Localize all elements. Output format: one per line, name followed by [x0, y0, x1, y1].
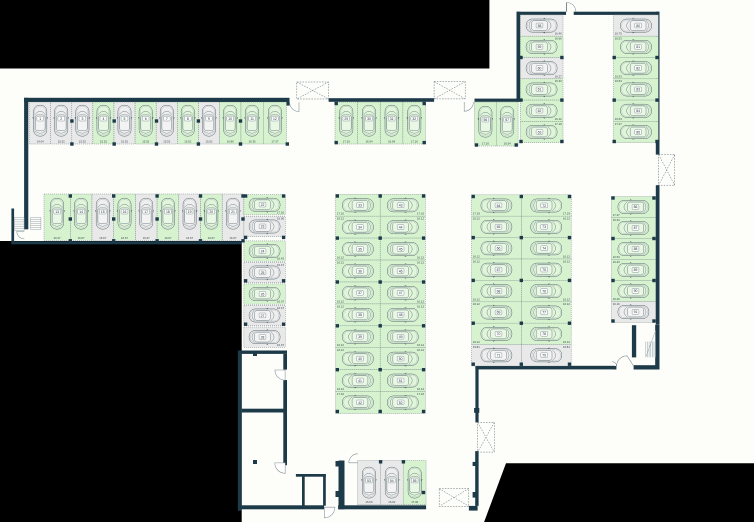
- svg-text:70: 70: [497, 332, 501, 336]
- svg-text:91: 91: [634, 310, 638, 314]
- svg-text:9: 9: [208, 117, 210, 121]
- svg-text:22: 22: [261, 203, 265, 207]
- svg-text:16.12: 16.12: [555, 117, 562, 121]
- svg-text:17.16: 17.16: [277, 210, 284, 214]
- svg-text:16.67: 16.67: [99, 236, 106, 240]
- svg-text:43: 43: [399, 204, 403, 208]
- svg-text:15.52: 15.52: [142, 140, 149, 144]
- svg-text:26: 26: [261, 292, 265, 296]
- svg-text:16.33: 16.33: [613, 260, 620, 264]
- svg-text:32: 32: [412, 117, 416, 121]
- svg-text:16.67: 16.67: [143, 236, 150, 240]
- svg-text:16.67: 16.67: [164, 236, 171, 240]
- svg-text:40: 40: [358, 357, 362, 361]
- svg-text:62: 62: [538, 109, 542, 113]
- svg-text:14.04: 14.04: [37, 140, 44, 144]
- svg-text:27: 27: [261, 314, 265, 318]
- svg-text:16.12: 16.12: [563, 217, 570, 221]
- svg-text:88: 88: [634, 247, 638, 251]
- svg-text:37: 37: [358, 291, 362, 295]
- svg-text:16.12: 16.12: [417, 348, 424, 352]
- svg-text:10: 10: [228, 117, 232, 121]
- svg-text:16.12: 16.12: [337, 387, 344, 391]
- svg-text:6: 6: [145, 117, 147, 121]
- svg-text:16.33: 16.33: [555, 79, 562, 83]
- svg-text:17.19: 17.19: [555, 122, 562, 126]
- svg-text:16.00: 16.00: [365, 500, 372, 504]
- svg-text:66: 66: [497, 247, 501, 251]
- svg-text:16.07: 16.07: [277, 343, 284, 347]
- svg-text:82: 82: [636, 66, 640, 70]
- svg-text:16.12: 16.12: [337, 343, 344, 347]
- svg-text:3: 3: [81, 117, 83, 121]
- svg-text:71: 71: [497, 354, 501, 358]
- svg-text:17.27: 17.27: [615, 122, 622, 126]
- svg-text:16.12: 16.12: [337, 304, 344, 308]
- svg-text:16.86: 16.86: [227, 140, 234, 144]
- svg-text:68: 68: [497, 289, 501, 293]
- svg-text:35: 35: [358, 247, 362, 251]
- svg-text:16.12: 16.12: [337, 348, 344, 352]
- svg-text:16.12: 16.12: [417, 261, 424, 265]
- svg-text:16.12: 16.12: [417, 256, 424, 260]
- svg-text:17.19: 17.19: [563, 212, 570, 216]
- svg-text:55: 55: [413, 479, 417, 483]
- svg-text:17.16: 17.16: [417, 392, 424, 396]
- svg-text:30: 30: [367, 117, 371, 121]
- svg-text:16.67: 16.67: [186, 236, 193, 240]
- svg-text:59: 59: [538, 45, 542, 49]
- svg-text:15.52: 15.52: [184, 140, 191, 144]
- svg-text:16.67: 16.67: [208, 236, 215, 240]
- svg-text:24: 24: [261, 249, 265, 253]
- svg-text:17.16: 17.16: [417, 212, 424, 216]
- svg-text:16.54: 16.54: [504, 142, 511, 146]
- svg-text:1: 1: [39, 117, 41, 121]
- svg-text:44: 44: [399, 225, 403, 229]
- svg-text:75: 75: [542, 268, 546, 272]
- svg-text:76: 76: [542, 289, 546, 293]
- svg-text:50: 50: [399, 357, 403, 361]
- svg-text:16.12: 16.12: [563, 255, 570, 259]
- svg-text:16.67: 16.67: [78, 236, 85, 240]
- svg-text:17.00: 17.00: [411, 500, 418, 504]
- svg-text:16.46: 16.46: [555, 32, 562, 36]
- svg-text:17.16: 17.16: [343, 140, 350, 144]
- svg-text:16.43: 16.43: [277, 257, 284, 261]
- svg-text:16.12: 16.12: [473, 302, 480, 306]
- svg-text:16.27: 16.27: [555, 74, 562, 78]
- svg-text:11: 11: [250, 117, 254, 121]
- svg-text:83: 83: [636, 88, 640, 92]
- svg-text:29: 29: [344, 117, 348, 121]
- svg-text:4: 4: [103, 117, 105, 121]
- svg-text:39: 39: [358, 335, 362, 339]
- svg-text:23: 23: [261, 225, 265, 229]
- svg-text:13: 13: [55, 210, 59, 214]
- svg-text:16.12: 16.12: [473, 297, 480, 301]
- svg-text:61: 61: [538, 88, 542, 92]
- svg-text:17.16: 17.16: [337, 212, 344, 216]
- svg-text:15.52: 15.52: [163, 140, 170, 144]
- svg-text:53: 53: [367, 479, 371, 483]
- svg-text:16.12: 16.12: [563, 297, 570, 301]
- svg-text:8: 8: [187, 117, 189, 121]
- svg-text:15.52: 15.52: [205, 140, 212, 144]
- svg-text:7: 7: [166, 117, 168, 121]
- svg-text:16.12: 16.12: [563, 259, 570, 263]
- svg-text:79: 79: [542, 354, 546, 358]
- svg-text:52: 52: [399, 401, 403, 405]
- svg-text:5: 5: [124, 117, 126, 121]
- svg-text:19: 19: [188, 210, 192, 214]
- svg-text:17.16: 17.16: [411, 140, 418, 144]
- svg-text:16.20: 16.20: [613, 297, 620, 301]
- svg-text:16.54: 16.54: [388, 140, 395, 144]
- svg-text:16.00: 16.00: [277, 217, 284, 221]
- svg-text:20: 20: [209, 210, 213, 214]
- svg-text:16.12: 16.12: [337, 261, 344, 265]
- svg-text:16.07: 16.07: [277, 300, 284, 304]
- svg-text:56: 56: [484, 118, 488, 122]
- svg-text:15.52: 15.52: [100, 140, 107, 144]
- svg-text:63: 63: [538, 130, 542, 134]
- svg-text:16.67: 16.67: [121, 236, 128, 240]
- svg-text:86: 86: [634, 205, 638, 209]
- svg-text:69: 69: [497, 311, 501, 315]
- svg-text:72: 72: [542, 204, 546, 208]
- svg-text:16.00: 16.00: [388, 500, 395, 504]
- svg-text:54: 54: [390, 479, 394, 483]
- svg-text:49: 49: [399, 335, 403, 339]
- svg-text:16.12: 16.12: [473, 217, 480, 221]
- svg-text:18: 18: [166, 210, 170, 214]
- svg-text:80: 80: [636, 24, 640, 28]
- svg-text:17.27: 17.27: [613, 213, 620, 217]
- svg-text:34: 34: [358, 225, 362, 229]
- svg-text:16.12: 16.12: [417, 299, 424, 303]
- svg-text:87: 87: [634, 226, 638, 230]
- svg-text:15.52: 15.52: [121, 140, 128, 144]
- svg-text:16.53: 16.53: [615, 117, 622, 121]
- svg-text:16.33: 16.33: [613, 218, 620, 222]
- svg-text:20.27: 20.27: [54, 236, 61, 240]
- svg-text:16.12: 16.12: [417, 387, 424, 391]
- svg-text:89: 89: [634, 268, 638, 272]
- svg-text:48: 48: [399, 313, 403, 317]
- svg-text:64: 64: [497, 204, 501, 208]
- svg-text:17.16: 17.16: [482, 142, 489, 146]
- svg-text:42: 42: [358, 401, 362, 405]
- svg-text:16.12: 16.12: [417, 343, 424, 347]
- svg-text:16.47: 16.47: [277, 263, 284, 267]
- svg-text:57: 57: [505, 118, 509, 122]
- svg-text:74: 74: [542, 247, 546, 251]
- svg-text:51: 51: [399, 379, 403, 383]
- svg-text:16.12: 16.12: [417, 217, 424, 221]
- svg-text:16.47: 16.47: [277, 306, 284, 310]
- svg-text:90: 90: [634, 289, 638, 293]
- svg-text:14: 14: [79, 210, 83, 214]
- svg-text:60: 60: [538, 66, 542, 70]
- svg-text:28: 28: [261, 335, 265, 339]
- svg-text:16.12: 16.12: [473, 255, 480, 259]
- svg-text:2: 2: [60, 117, 62, 121]
- svg-text:16.12: 16.12: [563, 302, 570, 306]
- svg-text:77: 77: [542, 311, 546, 315]
- svg-text:16.75: 16.75: [615, 32, 622, 36]
- svg-text:15.81: 15.81: [473, 345, 480, 349]
- svg-text:58: 58: [538, 24, 542, 28]
- svg-text:16.16: 16.16: [613, 302, 620, 306]
- svg-text:15.81: 15.81: [563, 345, 570, 349]
- svg-text:16.53: 16.53: [613, 255, 620, 259]
- svg-text:45: 45: [399, 247, 403, 251]
- svg-text:16.12: 16.12: [473, 259, 480, 263]
- svg-text:12: 12: [273, 117, 277, 121]
- svg-text:67: 67: [497, 268, 501, 272]
- svg-text:16.12: 16.12: [337, 217, 344, 221]
- svg-text:38: 38: [358, 313, 362, 317]
- svg-text:16.53: 16.53: [615, 74, 622, 78]
- svg-text:17: 17: [144, 210, 148, 214]
- svg-text:81: 81: [636, 45, 640, 49]
- svg-text:15: 15: [101, 210, 105, 214]
- svg-text:46: 46: [399, 269, 403, 273]
- svg-text:84: 84: [636, 109, 640, 113]
- svg-text:33: 33: [358, 204, 362, 208]
- svg-text:65: 65: [497, 225, 501, 229]
- svg-text:73: 73: [542, 225, 546, 229]
- svg-text:16.12: 16.12: [337, 256, 344, 260]
- svg-text:17.37: 17.37: [271, 140, 278, 144]
- svg-text:16.12: 16.12: [473, 340, 480, 344]
- svg-text:78: 78: [542, 332, 546, 336]
- svg-text:16.35: 16.35: [249, 140, 256, 144]
- svg-text:16.54: 16.54: [366, 140, 373, 144]
- svg-text:31: 31: [390, 117, 394, 121]
- svg-text:15.52: 15.52: [79, 140, 86, 144]
- svg-text:17.16: 17.16: [337, 392, 344, 396]
- svg-text:16: 16: [123, 210, 127, 214]
- svg-text:85: 85: [636, 130, 640, 134]
- svg-text:16.67: 16.67: [230, 236, 237, 240]
- svg-text:17.19: 17.19: [473, 212, 480, 216]
- svg-text:21: 21: [231, 210, 235, 214]
- svg-text:16.66: 16.66: [555, 37, 562, 41]
- svg-text:16.53: 16.53: [615, 37, 622, 41]
- svg-text:36: 36: [358, 269, 362, 273]
- svg-text:41: 41: [358, 379, 362, 383]
- svg-text:25: 25: [261, 271, 265, 275]
- svg-text:16.12: 16.12: [563, 340, 570, 344]
- svg-text:16.53: 16.53: [615, 79, 622, 83]
- svg-text:16.12: 16.12: [417, 304, 424, 308]
- svg-text:16.12: 16.12: [337, 299, 344, 303]
- svg-text:47: 47: [399, 291, 403, 295]
- svg-text:15.52: 15.52: [58, 140, 65, 144]
